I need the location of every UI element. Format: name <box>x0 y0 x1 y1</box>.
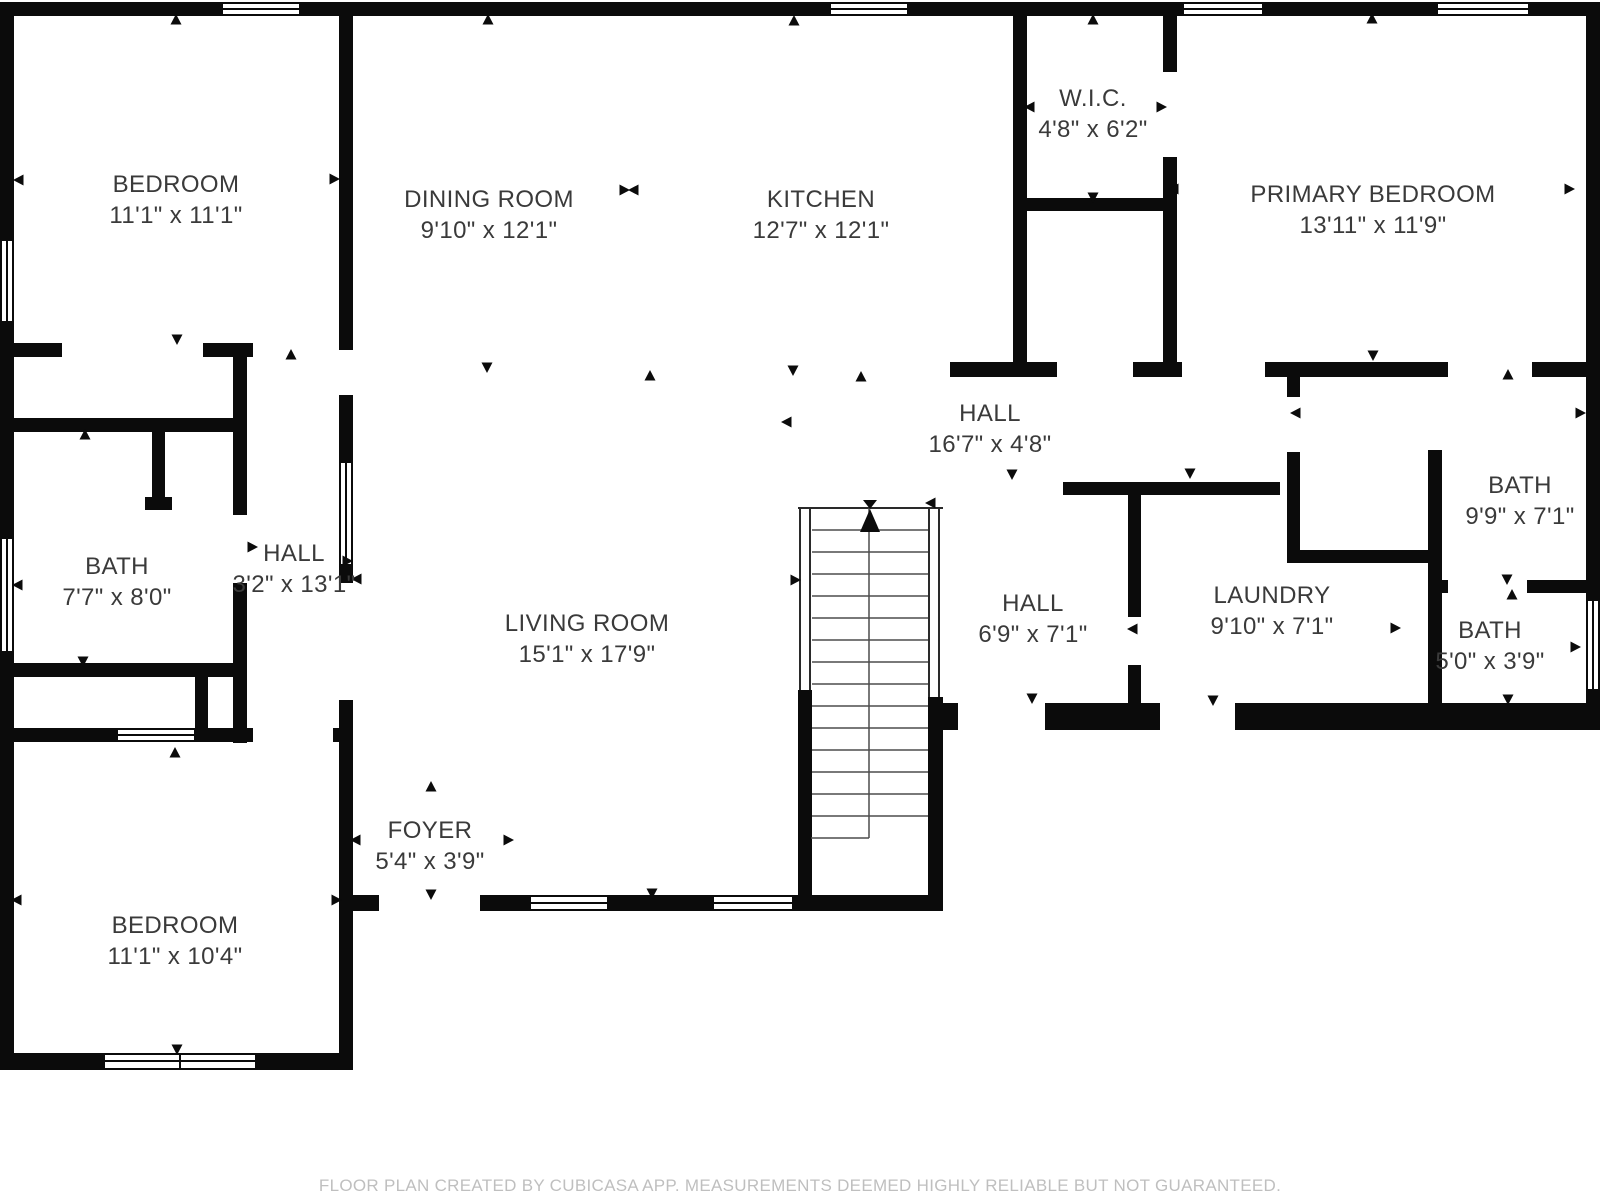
room-dims: 7'7" x 8'0" <box>62 582 171 613</box>
measure-arrow-icon <box>925 498 936 509</box>
room-dims: 5'4" x 3'9" <box>375 846 484 877</box>
measure-arrow-icon <box>170 747 181 758</box>
room-dims: 9'10" x 7'1" <box>1210 611 1333 642</box>
measure-arrow-icon <box>286 349 297 360</box>
room-label-bath-ensuite: BATH 9'9" x 7'1" <box>1465 470 1574 532</box>
room-name: BATH <box>62 551 171 582</box>
room-label-hall-upper: HALL 16'7" x 4'8" <box>928 398 1051 460</box>
room-label-dining-room: DINING ROOM 9'10" x 12'1" <box>404 184 574 246</box>
measure-arrow-icon <box>426 781 437 792</box>
measure-arrow-icon <box>645 370 656 381</box>
room-label-wic: W.I.C. 4'8" x 6'2" <box>1038 83 1147 145</box>
measure-arrow-icon <box>1571 642 1582 653</box>
room-label-living-room: LIVING ROOM 15'1" x 17'9" <box>505 608 669 670</box>
room-dims: 4'8" x 6'2" <box>1038 114 1147 145</box>
measure-arrow-icon <box>1576 408 1587 419</box>
window-icon <box>1 240 13 322</box>
window-icon <box>180 1054 256 1069</box>
room-label-bedroom-2: BEDROOM 11'1" x 10'4" <box>107 910 242 972</box>
room-dims: 13'11" x 11'9" <box>1250 210 1495 241</box>
room-name: PRIMARY BEDROOM <box>1250 179 1495 210</box>
room-label-kitchen: KITCHEN 12'7" x 12'1" <box>753 184 890 246</box>
measure-arrow-icon <box>789 15 800 26</box>
stairs-up-arrow-icon <box>860 509 880 532</box>
room-dims: 6'9" x 7'1" <box>978 619 1087 650</box>
measure-arrow-icon <box>13 175 24 186</box>
room-name: HALL <box>232 538 355 569</box>
measure-arrow-icon <box>781 417 792 428</box>
room-name: KITCHEN <box>753 184 890 215</box>
measure-arrow-icon <box>1368 351 1379 362</box>
measure-arrow-icon <box>788 366 799 377</box>
measure-arrow-icon <box>1565 184 1576 195</box>
room-label-foyer: FOYER 5'4" x 3'9" <box>375 815 484 877</box>
window-icon <box>222 3 300 15</box>
measure-arrow-icon <box>1208 696 1219 707</box>
room-name: BEDROOM <box>109 169 242 200</box>
window-icon <box>1 538 13 652</box>
room-dims: 9'10" x 12'1" <box>404 215 574 246</box>
window-icon <box>1587 600 1599 690</box>
room-dims: 15'1" x 17'9" <box>505 639 669 670</box>
measure-arrow-icon <box>856 371 867 382</box>
room-label-laundry: LAUNDRY 9'10" x 7'1" <box>1210 580 1333 642</box>
room-label-bath-left: BATH 7'7" x 8'0" <box>62 551 171 613</box>
measure-arrow-icon <box>504 835 515 846</box>
measure-arrow-icon <box>330 174 341 185</box>
measure-arrow-icon <box>1391 623 1402 634</box>
footer-note: FLOOR PLAN CREATED BY CUBICASA APP. MEAS… <box>319 1176 1281 1196</box>
room-dims: 3'2" x 13'1" <box>232 569 355 600</box>
window-icon <box>104 1054 180 1069</box>
room-label-bath-small: BATH 5'0" x 3'9" <box>1435 615 1544 677</box>
measure-arrow-icon <box>1507 589 1518 600</box>
window-icon <box>117 729 195 741</box>
measure-arrow-icon <box>172 335 183 346</box>
room-dims: 16'7" x 4'8" <box>928 429 1051 460</box>
room-dims: 9'9" x 7'1" <box>1465 501 1574 532</box>
room-name: W.I.C. <box>1038 83 1147 114</box>
measure-arrow-icon <box>1185 469 1196 480</box>
room-name: BATH <box>1435 615 1544 646</box>
measure-arrow-icon <box>1503 369 1514 380</box>
room-name: BEDROOM <box>107 910 242 941</box>
room-name: FOYER <box>375 815 484 846</box>
room-name: DINING ROOM <box>404 184 574 215</box>
room-label-hall-lower: HALL 6'9" x 7'1" <box>978 588 1087 650</box>
measure-arrow-icon <box>628 185 639 196</box>
measure-arrow-icon <box>1007 470 1018 481</box>
window-icon <box>1183 3 1263 15</box>
measure-arrow-icon <box>426 890 437 901</box>
window-icon <box>530 896 608 910</box>
room-dims: 5'0" x 3'9" <box>1435 646 1544 677</box>
measure-arrow-icon <box>1502 575 1513 586</box>
room-label-hall-left: HALL 3'2" x 13'1" <box>232 538 355 600</box>
room-dims: 12'7" x 12'1" <box>753 215 890 246</box>
room-name: LAUNDRY <box>1210 580 1333 611</box>
floor-plan-canvas: BEDROOM 11'1" x 11'1" DINING ROOM 9'10" … <box>0 0 1600 1197</box>
room-label-bedroom-1: BEDROOM 11'1" x 11'1" <box>109 169 242 231</box>
room-name: BATH <box>1465 470 1574 501</box>
staircase <box>798 500 943 838</box>
room-dims: 11'1" x 11'1" <box>109 200 242 231</box>
measure-arrow-icon <box>482 363 493 374</box>
measure-arrow-icon <box>1290 408 1301 419</box>
window-icon <box>713 896 793 910</box>
room-name: HALL <box>978 588 1087 619</box>
measure-arrow-icon <box>1027 694 1038 705</box>
room-dims: 11'1" x 10'4" <box>107 941 242 972</box>
room-name: HALL <box>928 398 1051 429</box>
window-icon <box>1437 3 1529 15</box>
window-icon <box>830 3 908 15</box>
measure-arrow-icon <box>1157 102 1168 113</box>
room-name: LIVING ROOM <box>505 608 669 639</box>
measure-arrow-icon <box>1127 624 1138 635</box>
room-label-primary-bedroom: PRIMARY BEDROOM 13'11" x 11'9" <box>1250 179 1495 241</box>
